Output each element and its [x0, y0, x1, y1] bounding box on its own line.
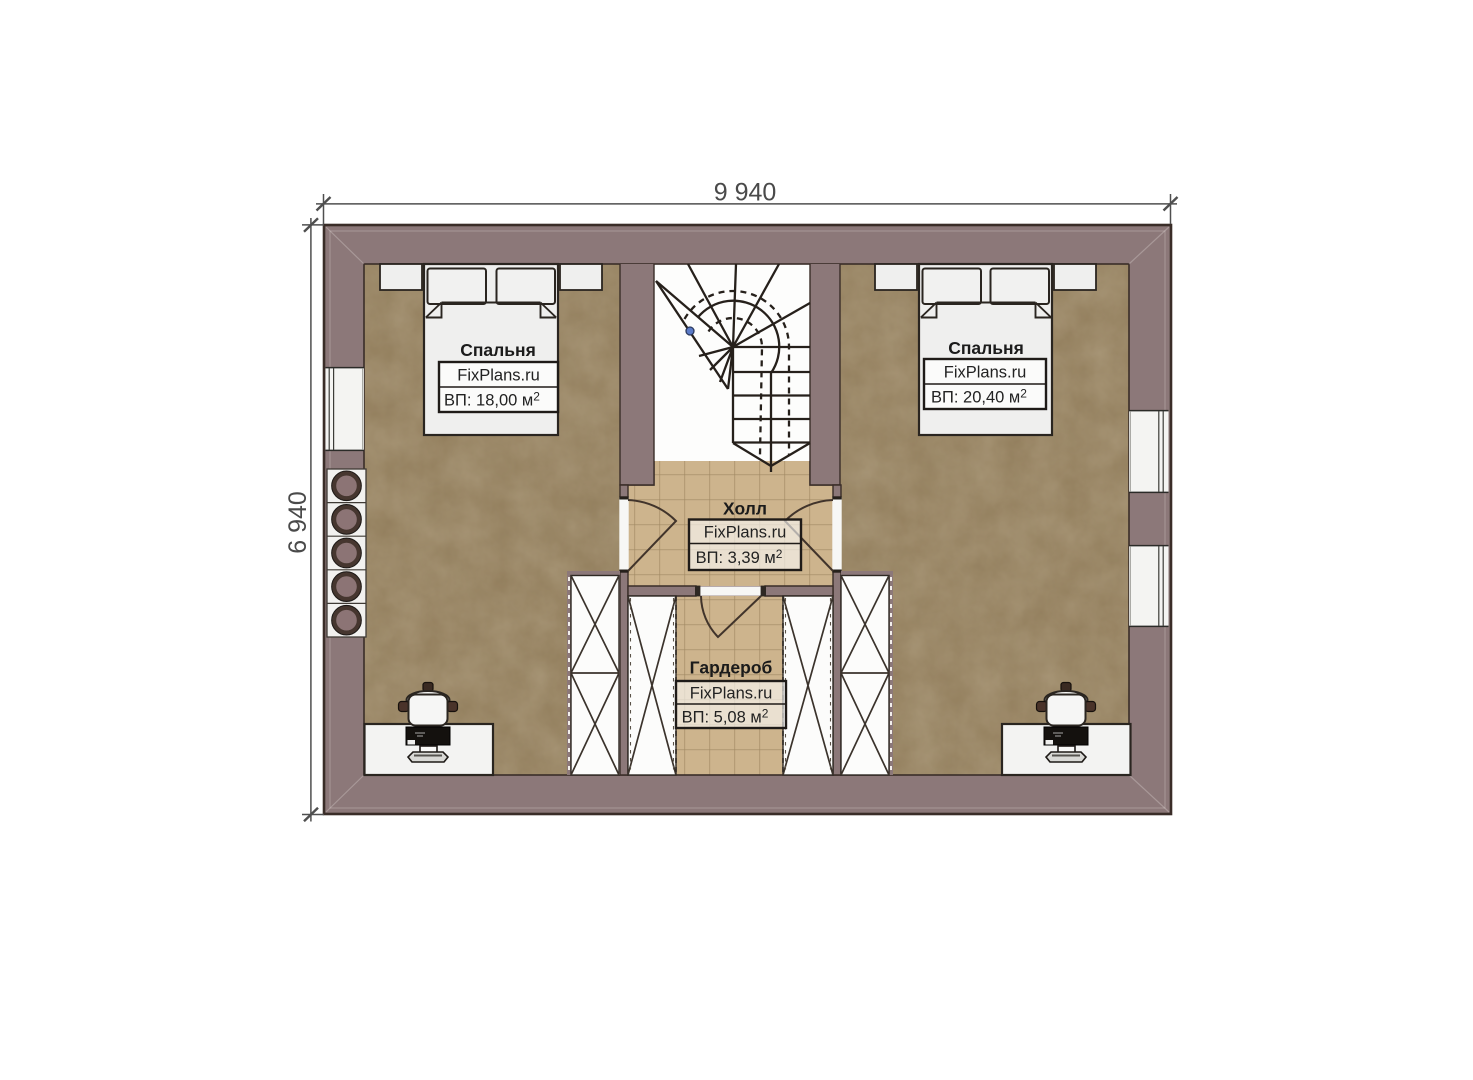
- svg-text:6 940: 6 940: [284, 491, 312, 554]
- svg-text:Гардероб: Гардероб: [690, 658, 773, 678]
- svg-text:9 940: 9 940: [714, 179, 777, 207]
- svg-text:Спальня: Спальня: [460, 340, 536, 360]
- svg-text:FixPlans.ru: FixPlans.ru: [690, 685, 773, 703]
- svg-text:ВП: 5,08 м2: ВП: 5,08 м2: [682, 707, 769, 727]
- svg-text:FixPlans.ru: FixPlans.ru: [944, 364, 1027, 382]
- svg-text:Холл: Холл: [723, 499, 767, 519]
- svg-text:Спальня: Спальня: [948, 338, 1024, 358]
- svg-text:ВП: 3,39 м2: ВП: 3,39 м2: [696, 547, 783, 567]
- svg-text:ВП: 18,00 м2: ВП: 18,00 м2: [444, 390, 540, 410]
- svg-text:FixPlans.ru: FixPlans.ru: [704, 524, 787, 542]
- svg-text:FixPlans.ru: FixPlans.ru: [457, 367, 540, 385]
- svg-text:ВП: 20,40 м2: ВП: 20,40 м2: [931, 387, 1027, 407]
